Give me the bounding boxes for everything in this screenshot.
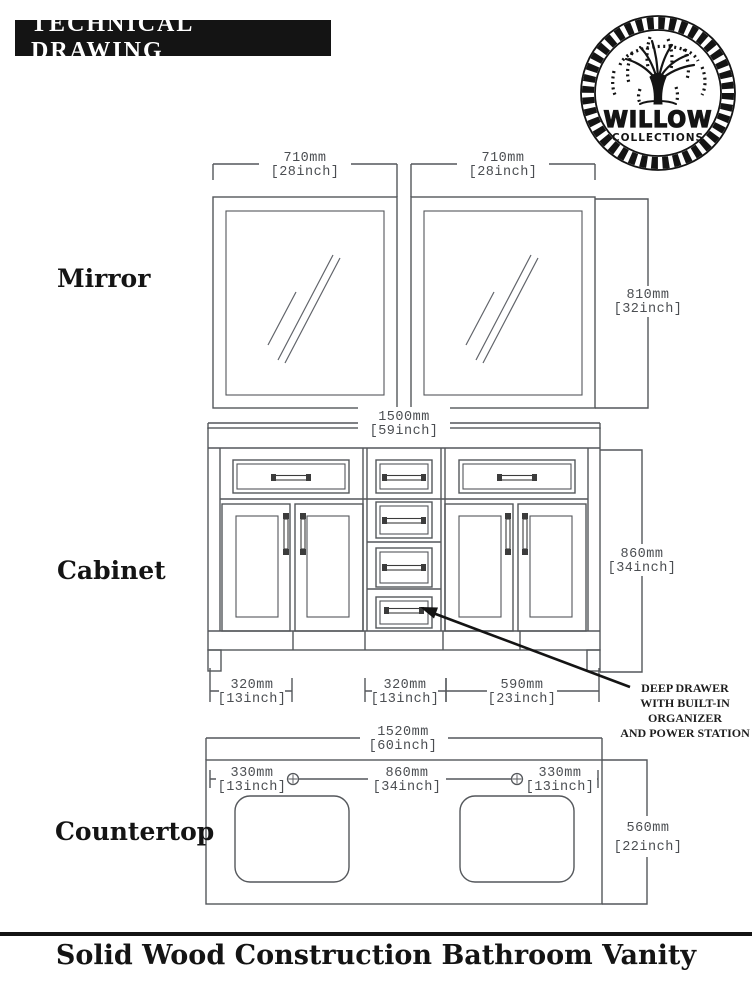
dim-cabinet-bottom-left: 320mm [13inch] [210, 668, 292, 707]
section-label-countertop: Countertop [55, 817, 214, 846]
cabinet-drawing: 1500mm [59inch] 320mm [13inch] 320mm [13… [208, 407, 676, 707]
dim-mm-label: 320mm [230, 678, 273, 693]
page-title: TECHNICAL DRAWING [31, 11, 331, 65]
logo-sub-text: COLLECTIONS [612, 132, 704, 144]
dim-mm-label: 330mm [538, 766, 581, 781]
dim-countertop-width: 1520mm [60inch] [206, 722, 602, 760]
dim-inch-label: [13inch] [218, 780, 287, 795]
door-right-1 [445, 504, 513, 631]
dim-mm-label: 1500mm [378, 410, 430, 425]
dim-mirror-height: 810mm [32inch] [595, 199, 683, 408]
dim-inch-label: [60inch] [369, 739, 438, 754]
door-left-2-panel [307, 516, 349, 617]
drawer-handle [382, 564, 426, 571]
dim-inch-label: [28inch] [271, 165, 340, 180]
footer-divider [0, 932, 752, 936]
dim-mm-label: 710mm [283, 151, 326, 166]
dim-mm-label: 590mm [500, 678, 543, 693]
dim-mirror-width-right: 710mm [28inch] [411, 149, 595, 197]
sink-cutout-right [460, 796, 574, 882]
dim-mm-label: 860mm [620, 547, 663, 562]
mirror-glass-right [424, 211, 582, 395]
drawer-handle [382, 474, 426, 481]
mirror-drawing: 710mm [28inch] 710mm [28inch] 810mm [32i… [213, 149, 683, 408]
dim-mirror-width-left: 710mm [28inch] [213, 149, 397, 197]
mirror-frame-left [213, 197, 397, 408]
drawer-handle [497, 474, 537, 481]
deep-drawer-annotation: DEEP DRAWER WITH BUILT-IN ORGANIZER AND … [618, 681, 752, 741]
sink-cutout-left [235, 796, 349, 882]
dim-mm-label: 710mm [481, 151, 524, 166]
dim-countertop-depth: 560mm [22inch] [602, 760, 682, 904]
dim-mm-label: 560mm [626, 821, 669, 836]
annotation-line: WITH BUILT-IN [618, 696, 752, 711]
dim-inch-label: [22inch] [614, 840, 683, 855]
mirror-glass-left [226, 211, 384, 395]
mirror-reflection-left [268, 255, 340, 363]
dim-mm-label: 320mm [383, 678, 426, 693]
door-left-1 [222, 504, 290, 631]
cabinet-leg-left [208, 650, 221, 671]
annotation-line: AND POWER STATION [618, 726, 752, 741]
cabinet-leg-right [587, 650, 600, 671]
section-label-cabinet: Cabinet [57, 556, 166, 585]
dim-mm-label: 1520mm [377, 725, 429, 740]
dim-inch-label: [13inch] [218, 692, 287, 707]
willow-tree-icon [613, 37, 705, 104]
dim-inch-label: [32inch] [614, 302, 683, 317]
door-right-1-panel [459, 516, 501, 617]
mirror-frame-right [411, 197, 595, 408]
annotation-line: ORGANIZER [618, 711, 752, 726]
mirror-reflection-right [466, 255, 538, 363]
dim-cabinet-bottom-right: 590mm [23inch] [446, 668, 599, 707]
dim-inch-label: [34inch] [373, 780, 442, 795]
section-label-mirror: Mirror [57, 264, 150, 293]
dim-inch-label: [59inch] [370, 424, 439, 439]
dim-inch-label: [28inch] [469, 165, 538, 180]
door-handle [283, 513, 289, 555]
dim-inch-label: [23inch] [488, 692, 557, 707]
dim-cabinet-width: 1500mm [59inch] [208, 407, 600, 439]
door-left-1-panel [236, 516, 278, 617]
drawer-handle [271, 474, 311, 481]
dim-inch-label: [13inch] [371, 692, 440, 707]
door-right-2-panel [530, 516, 572, 617]
footer-title: Solid Wood Construction Bathroom Vanity [0, 940, 752, 971]
annotation-line: DEEP DRAWER [618, 681, 752, 696]
countertop-drawing: 1520mm [60inch] 330mm [13inch] 860mm [34… [206, 722, 682, 904]
dim-inch-label: [34inch] [608, 561, 677, 576]
page-title-box: TECHNICAL DRAWING [15, 20, 331, 56]
dim-mm-label: 810mm [626, 288, 669, 303]
dim-cabinet-height: 860mm [34inch] [600, 450, 676, 672]
dim-mm-label: 860mm [385, 766, 428, 781]
door-handle [300, 513, 306, 555]
brand-logo: WILLOW COLLECTIONS [570, 5, 746, 181]
logo-brand-text: WILLOW [604, 108, 713, 133]
drawer-handle [382, 517, 426, 524]
drawer-handle-deep [384, 607, 424, 614]
door-handle [505, 513, 511, 555]
door-handle [522, 513, 528, 555]
dim-cabinet-bottom-middle: 320mm [13inch] [365, 676, 446, 707]
door-right-2 [518, 504, 586, 631]
deep-drawer-callout [420, 607, 630, 687]
dim-mm-label: 330mm [230, 766, 273, 781]
dim-inch-label: [13inch] [526, 780, 595, 795]
